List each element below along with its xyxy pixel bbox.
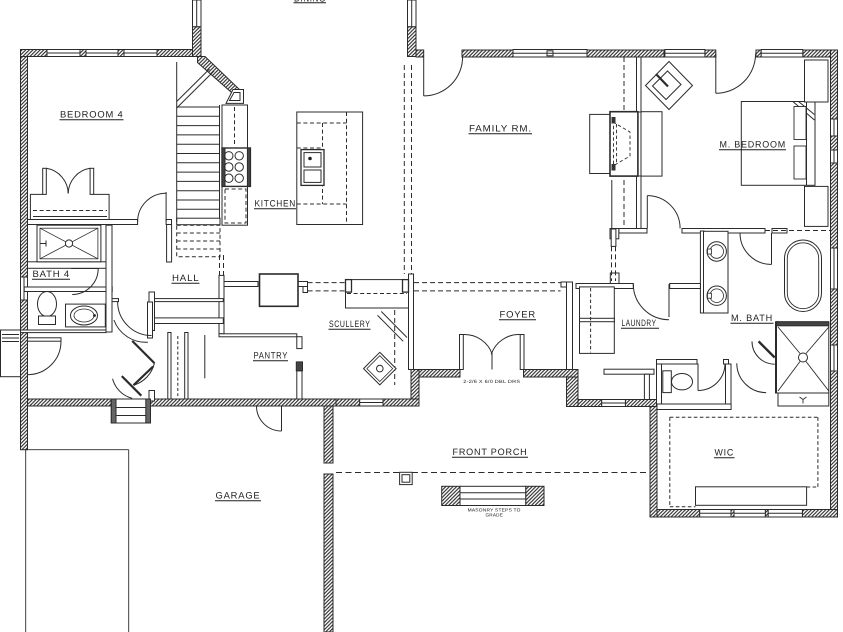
svg-text:BEDROOM 4: BEDROOM 4 [60,110,124,120]
svg-text:WIC: WIC [715,448,735,458]
svg-text:GARAGE: GARAGE [216,491,261,501]
svg-text:M. BEDROOM: M. BEDROOM [720,140,787,150]
svg-text:KITCHEN: KITCHEN [255,199,297,209]
svg-text:BATH 4: BATH 4 [33,269,71,279]
svg-text:GRADE: GRADE [486,513,504,518]
svg-text:2-2/6 X 6/0 DBL DRS: 2-2/6 X 6/0 DBL DRS [463,379,520,384]
svg-text:LAUNDRY: LAUNDRY [622,318,657,328]
svg-text:HALL: HALL [172,273,200,283]
svg-text:SCULLERY: SCULLERY [329,319,371,329]
svg-text:M. BATH: M. BATH [731,313,773,323]
svg-text:FAMILY RM.: FAMILY RM. [469,124,532,134]
svg-text:PANTRY: PANTRY [254,351,289,361]
svg-text:FRONT PORCH: FRONT PORCH [453,447,528,457]
svg-text:FOYER: FOYER [500,310,537,320]
